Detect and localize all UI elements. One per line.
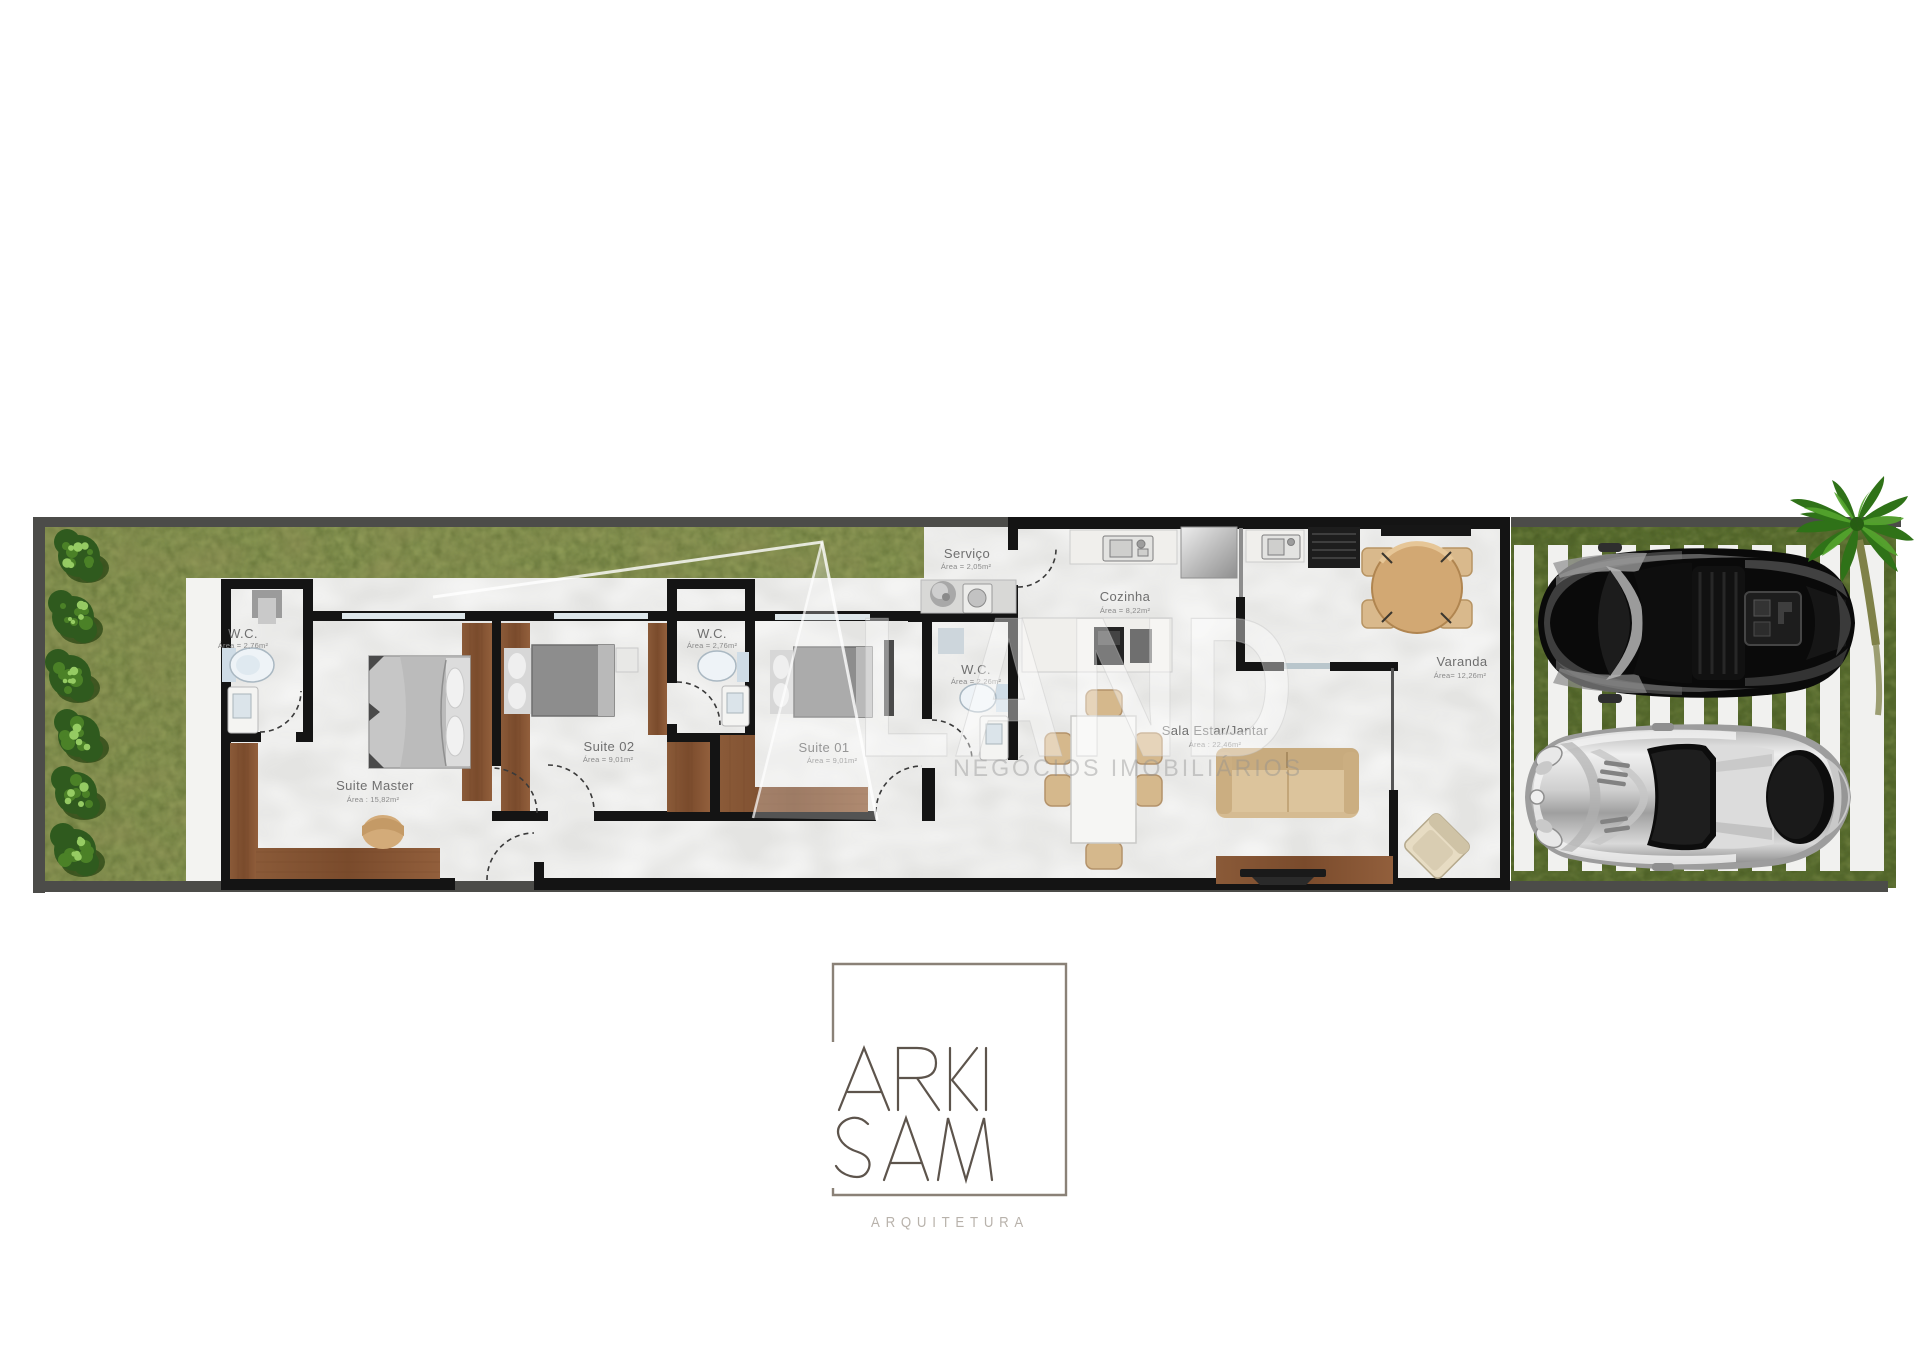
svg-text:Serviço: Serviço (944, 546, 990, 561)
svg-text:W.C.: W.C. (228, 626, 258, 641)
svg-text:Área= 12,26m²: Área= 12,26m² (1434, 671, 1487, 680)
svg-text:Área = 2,05m²: Área = 2,05m² (941, 562, 992, 571)
svg-text:Área = 9,01m²: Área = 9,01m² (583, 755, 634, 764)
svg-text:Suite 02: Suite 02 (584, 739, 635, 754)
svg-text:Área : 15,82m²: Área : 15,82m² (347, 795, 400, 804)
svg-text:Área = 2,76m²: Área = 2,76m² (218, 641, 269, 650)
svg-text:Varanda: Varanda (1437, 654, 1488, 669)
svg-text:NEGÓCIOS IMOBILIÁRIOS: NEGÓCIOS IMOBILIÁRIOS (953, 755, 1303, 782)
svg-text:Suite Master: Suite Master (336, 778, 414, 793)
svg-text:ARQUITETURA: ARQUITETURA (871, 1214, 1029, 1231)
svg-text:W.C.: W.C. (697, 626, 727, 641)
svg-text:Área = 2,76m²: Área = 2,76m² (687, 641, 738, 650)
